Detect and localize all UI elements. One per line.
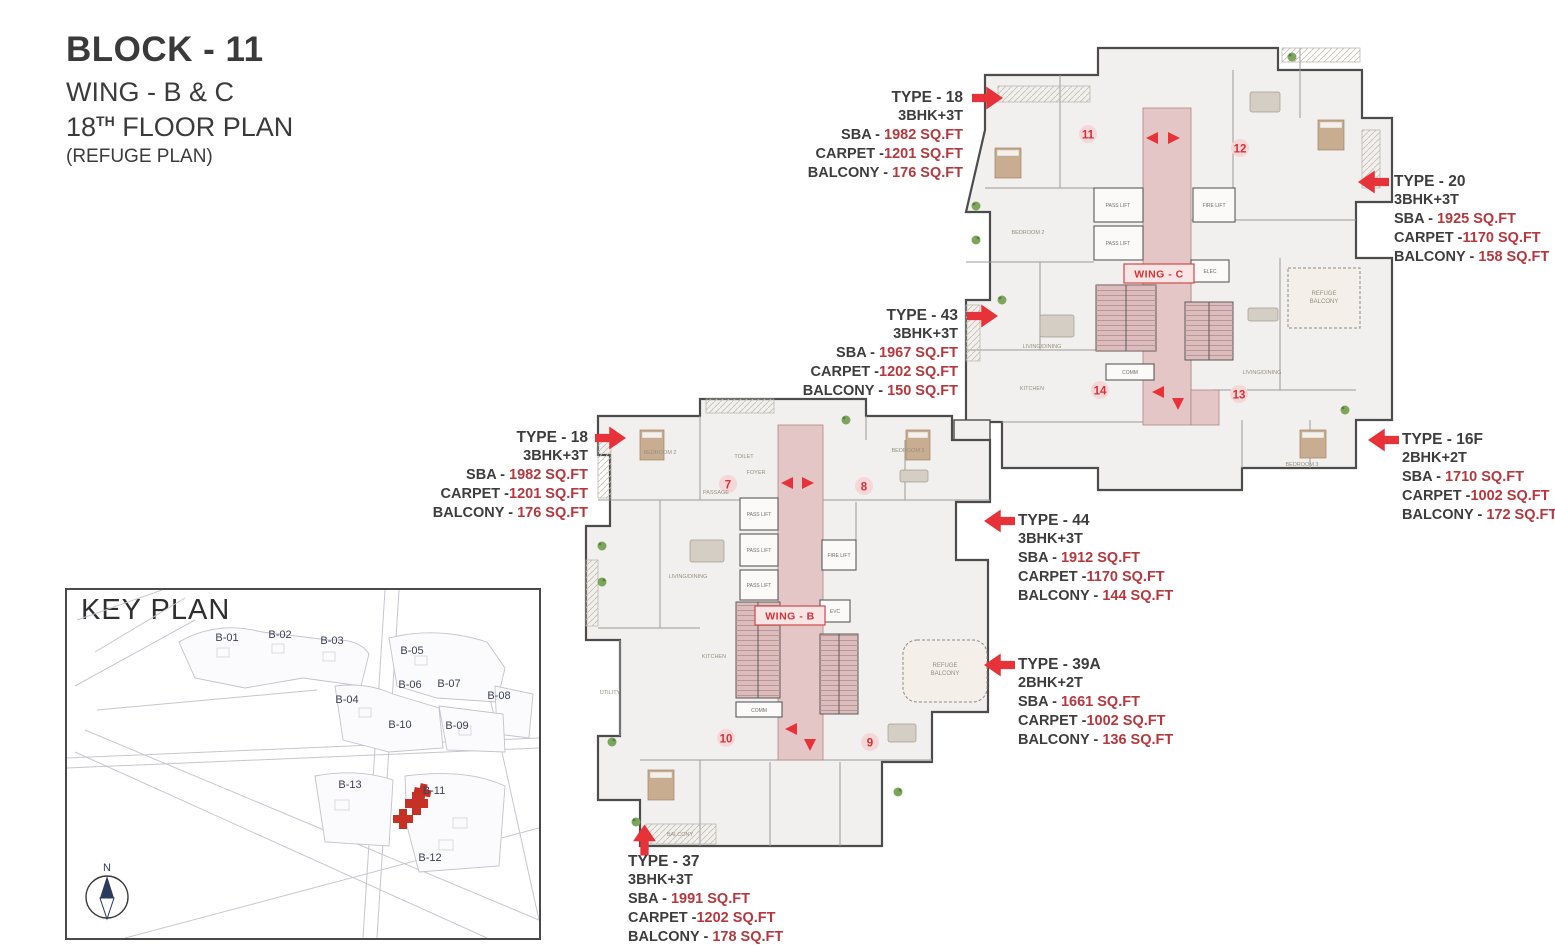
- carpet-label: CARPET -: [1394, 230, 1462, 246]
- label-b02: B-02: [268, 629, 291, 641]
- floor-plan: PASS LIFT PASS LIFT FIRE LIFT ELEC COMM: [560, 30, 1420, 860]
- annotation-type-43: TYPE - 43 3BHK+3T SBA - 1967 SQ.FT CARPE…: [800, 306, 958, 401]
- balcony-label: BALCONY -: [433, 505, 517, 521]
- balcony-row: BALCONY - 176 SQ.FT: [428, 504, 588, 523]
- label-b03: B-03: [320, 635, 343, 647]
- label-b09: B-09: [445, 720, 468, 732]
- balcony-label: BALCONY -: [803, 383, 887, 399]
- type-title-text: TYPE - 18: [892, 89, 964, 106]
- type-config: 3BHK+3T: [800, 325, 958, 344]
- carpet-label: CARPET -: [816, 146, 884, 162]
- pass-lift-label: PASS LIFT: [1106, 203, 1131, 209]
- room-label: LIVING/DINING: [1023, 344, 1062, 350]
- label-b13: B-13: [338, 779, 361, 791]
- balcony-row: BALCONY - 172 SQ.FT: [1402, 506, 1552, 525]
- sba-label: SBA -: [1018, 694, 1061, 710]
- compass-icon: N: [86, 862, 128, 919]
- compass-north-label: N: [103, 862, 111, 874]
- type-config: 3BHK+3T: [628, 871, 788, 890]
- unit-13-badge: 13: [1233, 390, 1246, 402]
- balcony-label: BALCONY -: [1018, 732, 1102, 748]
- unit-10-badge: 10: [720, 734, 733, 746]
- carpet-label: CARPET -: [1018, 569, 1086, 585]
- label-b05: B-05: [400, 645, 423, 657]
- balcony-value: 150 SQ.FT: [887, 383, 958, 399]
- page: BLOCK - 11 WING - B & C 18TH FLOOR PLAN …: [0, 0, 1555, 947]
- room-label: KITCHEN: [702, 654, 726, 660]
- wing-b-cluster: PASS LIFT PASS LIFT PASS LIFT FIRE LIFT …: [586, 399, 990, 846]
- pass-lift-label: PASS LIFT: [1106, 241, 1131, 247]
- room-label: BEDROOM 3: [1285, 462, 1318, 468]
- sba-row: SBA - 1912 SQ.FT: [1018, 549, 1168, 568]
- key-plan-panel: KEY PLAN: [65, 588, 541, 940]
- unit-14-badge: 14: [1094, 386, 1107, 398]
- comm-label: COMM: [1122, 370, 1138, 376]
- type-title-text: TYPE - 39A: [1018, 656, 1101, 673]
- carpet-value: 1202 SQ.FT: [696, 910, 775, 926]
- balcony-label: BALCONY -: [628, 929, 712, 945]
- label-b10: B-10: [388, 719, 411, 731]
- wing-subtitle: WING - B & C: [66, 77, 293, 108]
- sba-value: 1661 SQ.FT: [1061, 694, 1140, 710]
- carpet-label: CARPET -: [1402, 488, 1470, 504]
- type-title: TYPE - 18: [795, 88, 963, 107]
- wing-c-refuge-balcony: [1288, 268, 1360, 328]
- carpet-value: 1002 SQ.FT: [1470, 488, 1549, 504]
- type-config: 3BHK+3T: [795, 107, 963, 126]
- balcony-label: BALCONY -: [808, 165, 892, 181]
- wing-c-cluster: PASS LIFT PASS LIFT FIRE LIFT ELEC COMM: [966, 48, 1392, 490]
- sba-value: 1982 SQ.FT: [509, 467, 588, 483]
- room-label: BEDROOM 2: [643, 450, 676, 456]
- unit-12-badge: 12: [1234, 144, 1247, 156]
- balcony-label: BALCONY -: [1394, 249, 1478, 265]
- sba-value: 1967 SQ.FT: [879, 345, 958, 361]
- refuge-label: BALCONY: [1310, 299, 1339, 305]
- carpet-value: 1002 SQ.FT: [1086, 713, 1165, 729]
- refuge-label: BALCONY: [931, 671, 960, 677]
- type-title-text: TYPE - 44: [1018, 512, 1090, 529]
- annotation-type-44: TYPE - 44 3BHK+3T SBA - 1912 SQ.FT CARPE…: [1018, 511, 1168, 606]
- sba-row: SBA - 1982 SQ.FT: [795, 126, 963, 145]
- type-title-text: TYPE - 18: [517, 429, 589, 446]
- refuge-note: (REFUGE PLAN): [66, 146, 293, 168]
- carpet-value: 1170 SQ.FT: [1462, 230, 1540, 246]
- balcony-value: 158 SQ.FT: [1478, 249, 1549, 265]
- title-block: BLOCK - 11 WING - B & C 18TH FLOOR PLAN …: [66, 30, 293, 168]
- type-config: 3BHK+3T: [1018, 530, 1168, 549]
- carpet-label: CARPET -: [811, 364, 879, 380]
- room-label: KITCHEN: [1020, 386, 1044, 392]
- sba-row: SBA - 1710 SQ.FT: [1402, 468, 1552, 487]
- room-label: BALCONY: [667, 832, 694, 838]
- carpet-value: 1170 SQ.FT: [1086, 569, 1164, 585]
- carpet-value: 1202 SQ.FT: [879, 364, 958, 380]
- annotation-type-39a: TYPE - 39A 2BHK+2T SBA - 1661 SQ.FT CARP…: [1018, 655, 1168, 750]
- carpet-value: 1201 SQ.FT: [509, 486, 588, 502]
- carpet-row: CARPET -1202 SQ.FT: [628, 909, 788, 928]
- comm-label: COMM: [751, 708, 767, 714]
- carpet-value: 1201 SQ.FT: [884, 146, 963, 162]
- balcony-row: BALCONY - 150 SQ.FT: [800, 382, 958, 401]
- room-label: UTILITY: [600, 690, 621, 696]
- balcony-label: BALCONY -: [1402, 507, 1486, 523]
- fire-lift-label: FIRE LIFT: [1202, 203, 1225, 209]
- balcony-value: 136 SQ.FT: [1102, 732, 1173, 748]
- room-label: LIVING/DINING: [1243, 370, 1282, 376]
- type-title: TYPE - 39A: [1018, 655, 1168, 674]
- label-b01: B-01: [215, 632, 238, 644]
- type-title-text: TYPE - 20: [1394, 173, 1466, 190]
- carpet-row: CARPET -1002 SQ.FT: [1402, 487, 1552, 506]
- carpet-row: CARPET -1201 SQ.FT: [795, 145, 963, 164]
- type-title: TYPE - 18: [428, 428, 588, 447]
- label-b12: B-12: [418, 852, 441, 864]
- room-label: PASSAGE: [703, 490, 729, 496]
- type-title: TYPE - 37: [628, 852, 788, 871]
- floor-number: 18: [66, 112, 96, 142]
- carpet-row: CARPET -1170 SQ.FT: [1394, 229, 1544, 248]
- sba-row: SBA - 1925 SQ.FT: [1394, 210, 1544, 229]
- sba-value: 1710 SQ.FT: [1445, 469, 1524, 485]
- unit-9-badge: 9: [867, 738, 873, 750]
- label-b06: B-06: [398, 679, 421, 691]
- unit-11-badge: 11: [1082, 130, 1095, 142]
- type-title: TYPE - 43: [800, 306, 958, 325]
- wing-b-corridor: [778, 425, 823, 760]
- evc-label: EVC: [830, 609, 841, 615]
- room-label: BEDROOM 3: [891, 448, 924, 454]
- key-plan-clusters: [179, 628, 533, 872]
- label-b08: B-08: [487, 690, 510, 702]
- unit-8-badge: 8: [861, 482, 868, 494]
- sba-row: SBA - 1991 SQ.FT: [628, 890, 788, 909]
- label-b04: B-04: [335, 694, 358, 706]
- sba-row: SBA - 1661 SQ.FT: [1018, 693, 1168, 712]
- type-title: TYPE - 20: [1394, 172, 1544, 191]
- sba-label: SBA -: [1394, 211, 1437, 227]
- balcony-row: BALCONY - 136 SQ.FT: [1018, 731, 1168, 750]
- type-title-text: TYPE - 43: [887, 307, 959, 324]
- type-config: 2BHK+2T: [1018, 674, 1168, 693]
- balcony-row: BALCONY - 144 SQ.FT: [1018, 587, 1168, 606]
- floor-subtitle: 18TH FLOOR PLAN: [66, 112, 293, 143]
- type-config: 3BHK+3T: [1394, 191, 1544, 210]
- type-config: 2BHK+2T: [1402, 449, 1552, 468]
- sba-value: 1912 SQ.FT: [1061, 550, 1140, 566]
- label-b11: B-11: [423, 785, 445, 797]
- sba-label: SBA -: [836, 345, 879, 361]
- wing-connector: [954, 420, 990, 442]
- wing-c-label: WING - C: [1134, 269, 1184, 281]
- room-label: LIVING/DINING: [669, 574, 708, 580]
- balcony-value: 176 SQ.FT: [892, 165, 963, 181]
- sba-value: 1991 SQ.FT: [671, 891, 750, 907]
- type-title-text: TYPE - 16F: [1402, 431, 1483, 448]
- pass-lift-label: PASS LIFT: [747, 583, 772, 589]
- block-title: BLOCK - 11: [66, 30, 293, 70]
- refuge-label: REFUGE: [932, 663, 957, 669]
- key-plan-map: B-01 B-02 B-03 B-04 B-05 B-06 B-07 B-08 …: [67, 590, 539, 938]
- sba-label: SBA -: [1018, 550, 1061, 566]
- pass-lift-label: PASS LIFT: [747, 512, 772, 518]
- sba-value: 1982 SQ.FT: [884, 127, 963, 143]
- type-title-text: TYPE - 37: [628, 853, 700, 870]
- balcony-row: BALCONY - 178 SQ.FT: [628, 928, 788, 947]
- sba-value: 1925 SQ.FT: [1437, 211, 1516, 227]
- balcony-value: 176 SQ.FT: [517, 505, 588, 521]
- elec-label: ELEC: [1203, 269, 1216, 275]
- room-label: FOYER: [747, 470, 766, 476]
- balcony-value: 144 SQ.FT: [1102, 588, 1173, 604]
- label-b07: B-07: [437, 678, 460, 690]
- room-label: TOILET: [734, 454, 754, 460]
- carpet-label: CARPET -: [628, 910, 696, 926]
- balcony-row: BALCONY - 158 SQ.FT: [1394, 248, 1544, 267]
- room-label: BEDROOM 2: [1011, 230, 1044, 236]
- pass-lift-label: PASS LIFT: [747, 548, 772, 554]
- floor-ordinal: TH: [96, 113, 115, 129]
- balcony-row: BALCONY - 176 SQ.FT: [795, 164, 963, 183]
- sba-label: SBA -: [1402, 469, 1445, 485]
- annotation-type-20: TYPE - 20 3BHK+3T SBA - 1925 SQ.FT CARPE…: [1394, 172, 1544, 267]
- carpet-row: CARPET -1202 SQ.FT: [800, 363, 958, 382]
- floor-plan-text: FLOOR PLAN: [115, 112, 294, 142]
- refuge-label: REFUGE: [1311, 291, 1336, 297]
- type-title: TYPE - 44: [1018, 511, 1168, 530]
- annotation-type-16f: TYPE - 16F 2BHK+2T SBA - 1710 SQ.FT CARP…: [1402, 430, 1552, 525]
- sba-label: SBA -: [466, 467, 509, 483]
- carpet-row: CARPET -1170 SQ.FT: [1018, 568, 1168, 587]
- type-config: 3BHK+3T: [428, 447, 588, 466]
- balcony-label: BALCONY -: [1018, 588, 1102, 604]
- type-title: TYPE - 16F: [1402, 430, 1552, 449]
- wing-b-label: WING - B: [765, 611, 815, 623]
- fire-lift-label: FIRE LIFT: [827, 553, 850, 559]
- annotation-type-18-left: TYPE - 18 3BHK+3T SBA - 1982 SQ.FT CARPE…: [428, 428, 588, 523]
- sba-label: SBA -: [841, 127, 884, 143]
- annotation-type-18-top: TYPE - 18 3BHK+3T SBA - 1982 SQ.FT CARPE…: [795, 88, 963, 183]
- balcony-value: 172 SQ.FT: [1486, 507, 1555, 523]
- annotation-type-37: TYPE - 37 3BHK+3T SBA - 1991 SQ.FT CARPE…: [628, 852, 788, 947]
- carpet-row: CARPET -1201 SQ.FT: [428, 485, 588, 504]
- sba-row: SBA - 1967 SQ.FT: [800, 344, 958, 363]
- balcony-value: 178 SQ.FT: [712, 929, 783, 945]
- carpet-label: CARPET -: [441, 486, 509, 502]
- sba-label: SBA -: [628, 891, 671, 907]
- sba-row: SBA - 1982 SQ.FT: [428, 466, 588, 485]
- carpet-row: CARPET -1002 SQ.FT: [1018, 712, 1168, 731]
- carpet-label: CARPET -: [1018, 713, 1086, 729]
